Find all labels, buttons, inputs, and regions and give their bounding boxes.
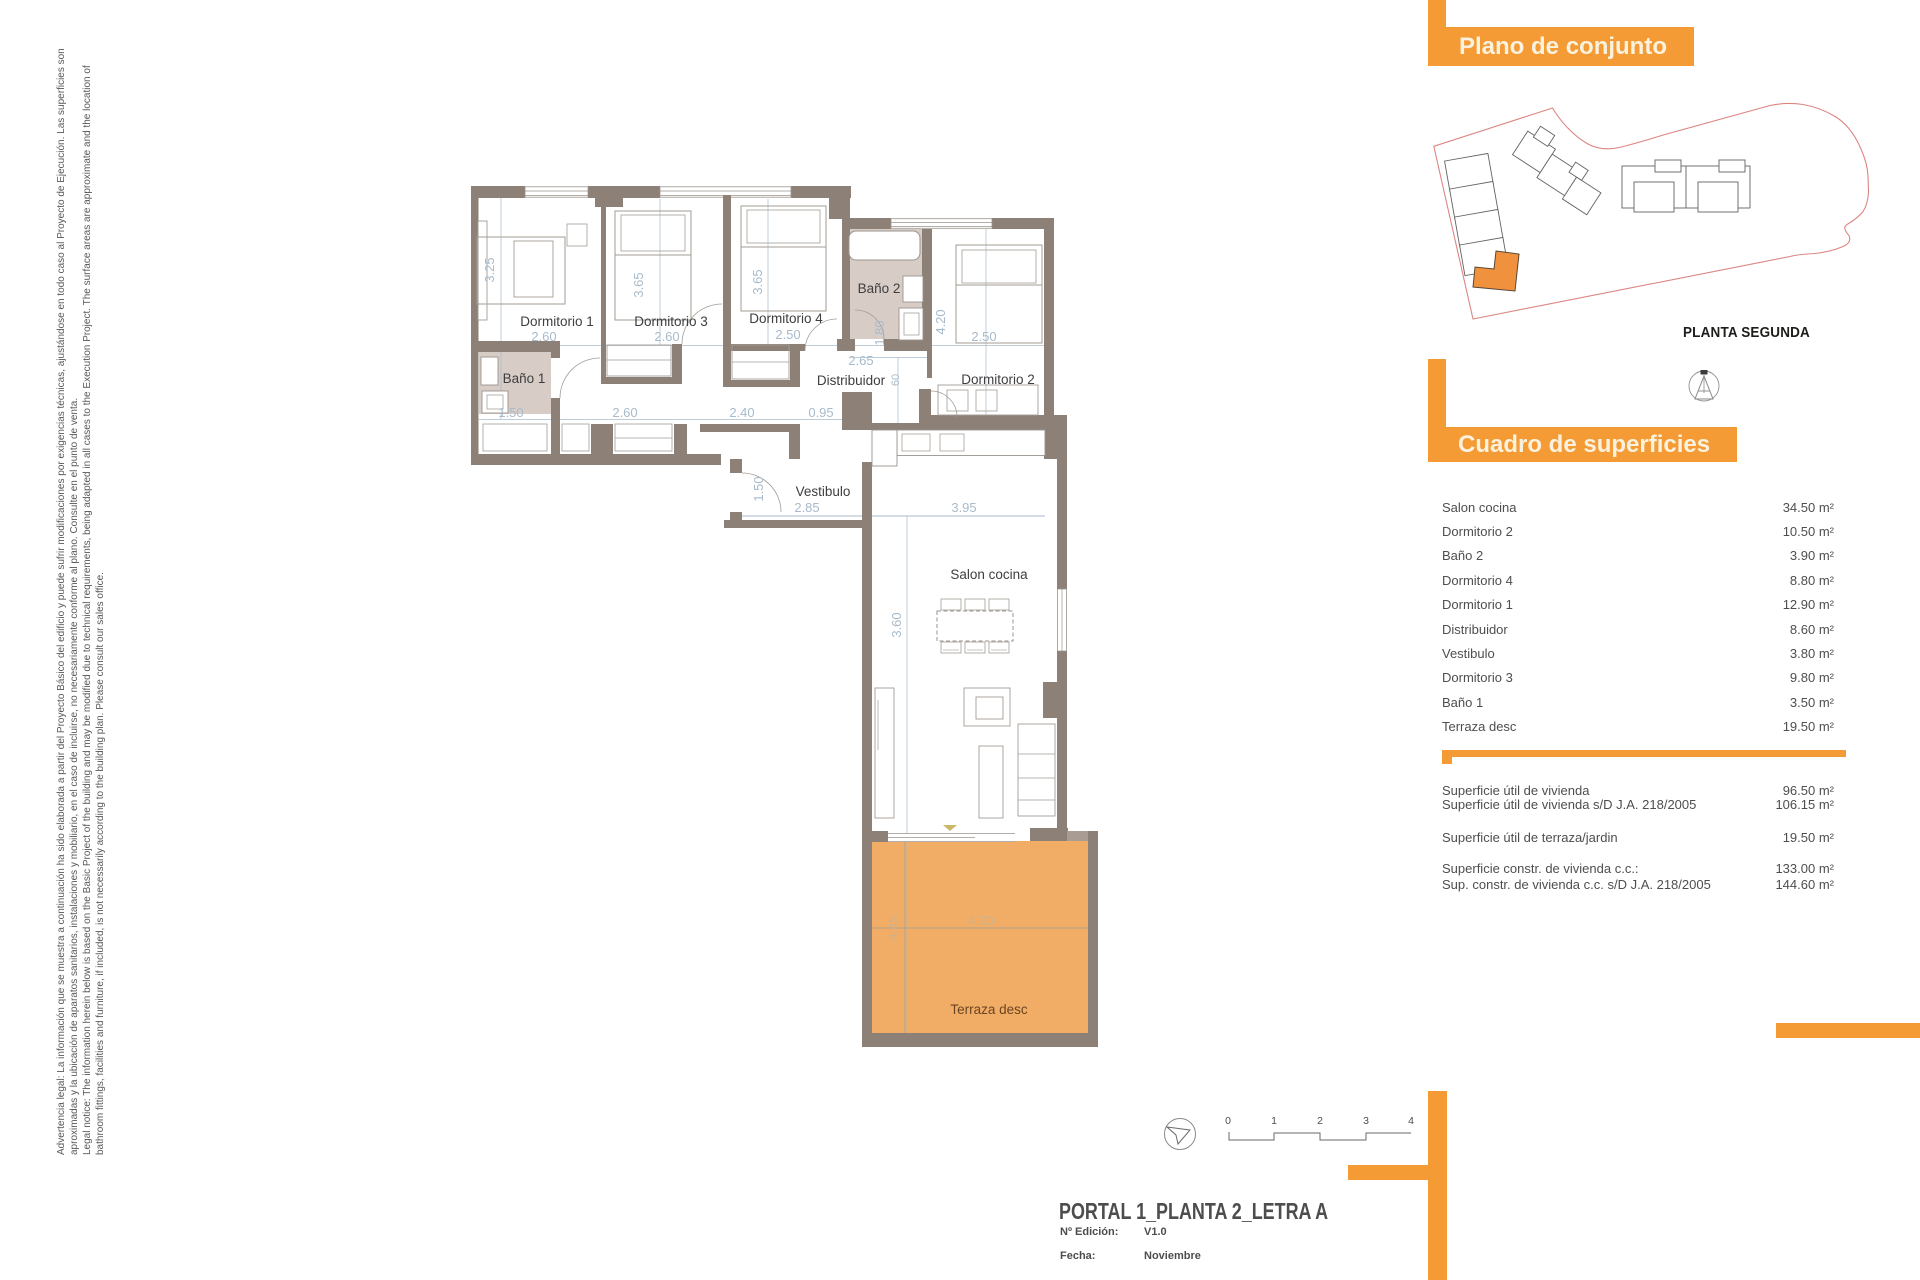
svg-text:Distribuidor: Distribuidor xyxy=(817,373,886,388)
svg-text:3.25: 3.25 xyxy=(482,257,497,282)
svg-text:Dormitorio 3: Dormitorio 3 xyxy=(634,314,708,329)
svg-text:4: 4 xyxy=(1408,1115,1414,1127)
svg-text:3.95: 3.95 xyxy=(951,500,976,515)
svg-text:Salon cocina: Salon cocina xyxy=(950,567,1028,582)
svg-text:2.40: 2.40 xyxy=(729,405,754,420)
svg-text:1.50: 1.50 xyxy=(751,476,766,501)
svg-text:4.20: 4.20 xyxy=(933,309,948,334)
svg-text:3.65: 3.65 xyxy=(750,269,765,294)
svg-text:0.95: 0.95 xyxy=(808,405,833,420)
svg-text:0: 0 xyxy=(1225,1115,1231,1127)
svg-text:2: 2 xyxy=(1317,1115,1323,1127)
svg-text:Baño 1: Baño 1 xyxy=(503,371,546,386)
svg-text:Dormitorio 4: Dormitorio 4 xyxy=(749,311,823,326)
svg-text:2.60: 2.60 xyxy=(531,329,556,344)
svg-text:3: 3 xyxy=(1363,1115,1369,1127)
svg-text:Baño 2: Baño 2 xyxy=(858,281,901,296)
svg-text:Terraza desc: Terraza desc xyxy=(950,1002,1028,1017)
svg-text:2.85: 2.85 xyxy=(794,500,819,515)
svg-text:4.45: 4.45 xyxy=(886,915,901,940)
svg-text:3.65: 3.65 xyxy=(631,272,646,297)
svg-text:Dormitorio 1: Dormitorio 1 xyxy=(520,314,594,329)
svg-text:2.65: 2.65 xyxy=(848,353,873,368)
svg-text:60: 60 xyxy=(890,374,902,386)
svg-text:1.80: 1.80 xyxy=(872,320,887,345)
svg-text:3.60: 3.60 xyxy=(889,612,904,637)
svg-text:2.60: 2.60 xyxy=(612,405,637,420)
svg-text:Dormitorio 2: Dormitorio 2 xyxy=(961,372,1035,387)
svg-text:1: 1 xyxy=(1271,1115,1277,1127)
svg-text:4.70: 4.70 xyxy=(968,913,993,928)
svg-text:2.50: 2.50 xyxy=(775,327,800,342)
svg-text:2.60: 2.60 xyxy=(654,329,679,344)
svg-text:Vestibulo: Vestibulo xyxy=(796,484,851,499)
svg-text:2.50: 2.50 xyxy=(971,329,996,344)
svg-text:1.50: 1.50 xyxy=(498,405,523,420)
